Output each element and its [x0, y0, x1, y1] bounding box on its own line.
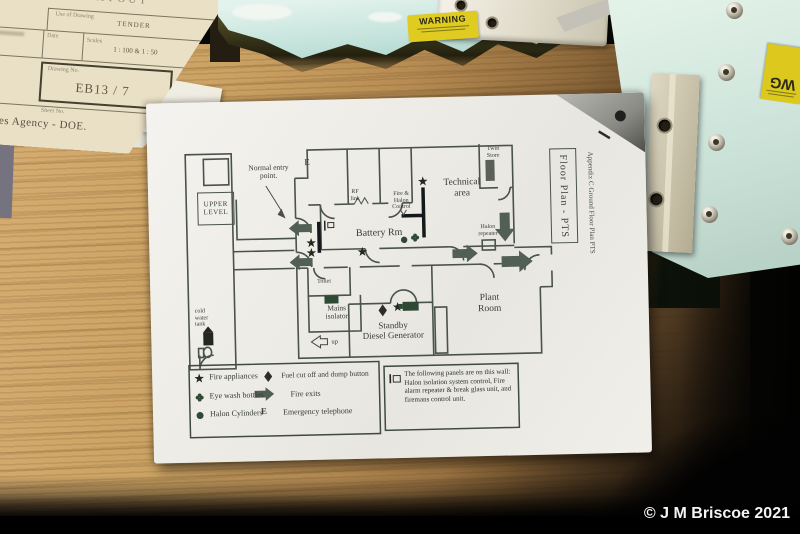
legend-e-icon: E	[261, 406, 267, 416]
emergency-telephone-marker: E	[304, 157, 310, 167]
warning-sticker-upside-down: WG	[760, 43, 800, 104]
copyright-watermark: © J M Briscoe 2021	[644, 505, 790, 523]
scales-label: Scales	[87, 38, 103, 45]
bolt-hole	[456, 1, 465, 10]
bolt-hole	[487, 18, 496, 27]
label-up: up	[331, 338, 338, 345]
paint-patch	[368, 12, 402, 22]
legend-eye-wash: Eye wash bottles	[210, 391, 264, 401]
legend-fire-exits: Fire exits	[291, 390, 321, 400]
screw-icon	[718, 64, 735, 81]
metal-bracket-right	[644, 73, 700, 253]
paint-patch	[232, 4, 292, 20]
legend-panel-note: The following panels are on this wall: H…	[404, 367, 515, 404]
legend-fire-appliances: Fire appliances	[209, 372, 258, 382]
photo-scene: LAYOUT Use of Drawing TENDER Date Scales…	[0, 0, 800, 534]
agency-line: vices Agency - DOE.	[0, 114, 87, 133]
date-label: Date	[47, 33, 59, 40]
metal-highlight	[662, 74, 676, 252]
use-of-drawing-label: Use of Drawing	[55, 11, 94, 20]
legend-halon-cylinders: Halon Cylinders	[210, 409, 263, 419]
label-fire-halon-control: Fire & Halon Control	[384, 191, 418, 212]
fire-exit-arrow-left	[289, 220, 312, 237]
drawing-no-label: Drawing No.	[48, 66, 80, 74]
label-plant-room: Plant Room	[468, 292, 510, 314]
use-of-drawing-value: TENDER	[117, 20, 151, 30]
generator-panel-symbol	[399, 304, 403, 309]
fire-exit-arrow-right	[501, 250, 533, 272]
screw-icon	[726, 2, 743, 19]
bolt-hole	[650, 193, 663, 206]
clover-icon	[196, 393, 204, 401]
label-toilet: Toilet	[317, 279, 331, 286]
eye-wash-icon	[411, 234, 419, 242]
diamond-icon	[264, 371, 272, 382]
green-symbols	[323, 234, 421, 313]
drawing-no-value: EB13 / 7	[75, 80, 130, 100]
label-cold-water-tank: cold water tank	[195, 308, 209, 328]
star-icon	[194, 373, 204, 382]
label-upper-level: UPPER LEVEL	[197, 192, 235, 226]
generator-panel-symbol	[403, 302, 419, 311]
screw-icon	[781, 228, 798, 245]
label-technical-area: Technical area	[431, 177, 493, 200]
label-normal-entry: Normal entry point.	[235, 163, 301, 181]
label-battery-room: Battery Rm	[356, 227, 403, 239]
floor-plan-paper: Normal entry point. E RF link Fire & Hal…	[146, 92, 652, 463]
sheet-no-label: Sheet No.	[41, 108, 65, 116]
plan-title: Floor Plan - PTS	[557, 152, 570, 240]
wall-panel-marker-icon	[325, 220, 334, 230]
legend-emergency-telephone: Emergency telephone	[283, 407, 353, 418]
circle-icon	[196, 412, 203, 419]
panel-marker-icon	[393, 375, 400, 382]
up-arrow-outline-icon	[311, 336, 327, 348]
label-twin-store: Twin Store	[480, 146, 506, 160]
cold-water-tank-symbol	[203, 326, 213, 345]
screw-icon	[701, 206, 718, 223]
fuel-cutoff-diamond-icon	[378, 304, 387, 316]
scales-value: 1 : 100 & 1 : 50	[113, 45, 158, 56]
label-mains-isolator: Mains isolator	[317, 304, 357, 322]
screw-icon	[708, 134, 725, 151]
label-halon-repeater: Halon repeater	[473, 224, 503, 238]
upper-level-text: UPPER LEVEL	[203, 201, 228, 217]
label-standby-generator: Standby Diesel Generator	[347, 319, 439, 341]
illegible-cell-label	[0, 30, 24, 36]
label-rf-link: RF link	[346, 189, 364, 203]
warning-sticker: WARNING	[407, 11, 479, 43]
metal-corner-triangle	[556, 92, 645, 154]
form-title: LAYOUT	[87, 0, 150, 7]
